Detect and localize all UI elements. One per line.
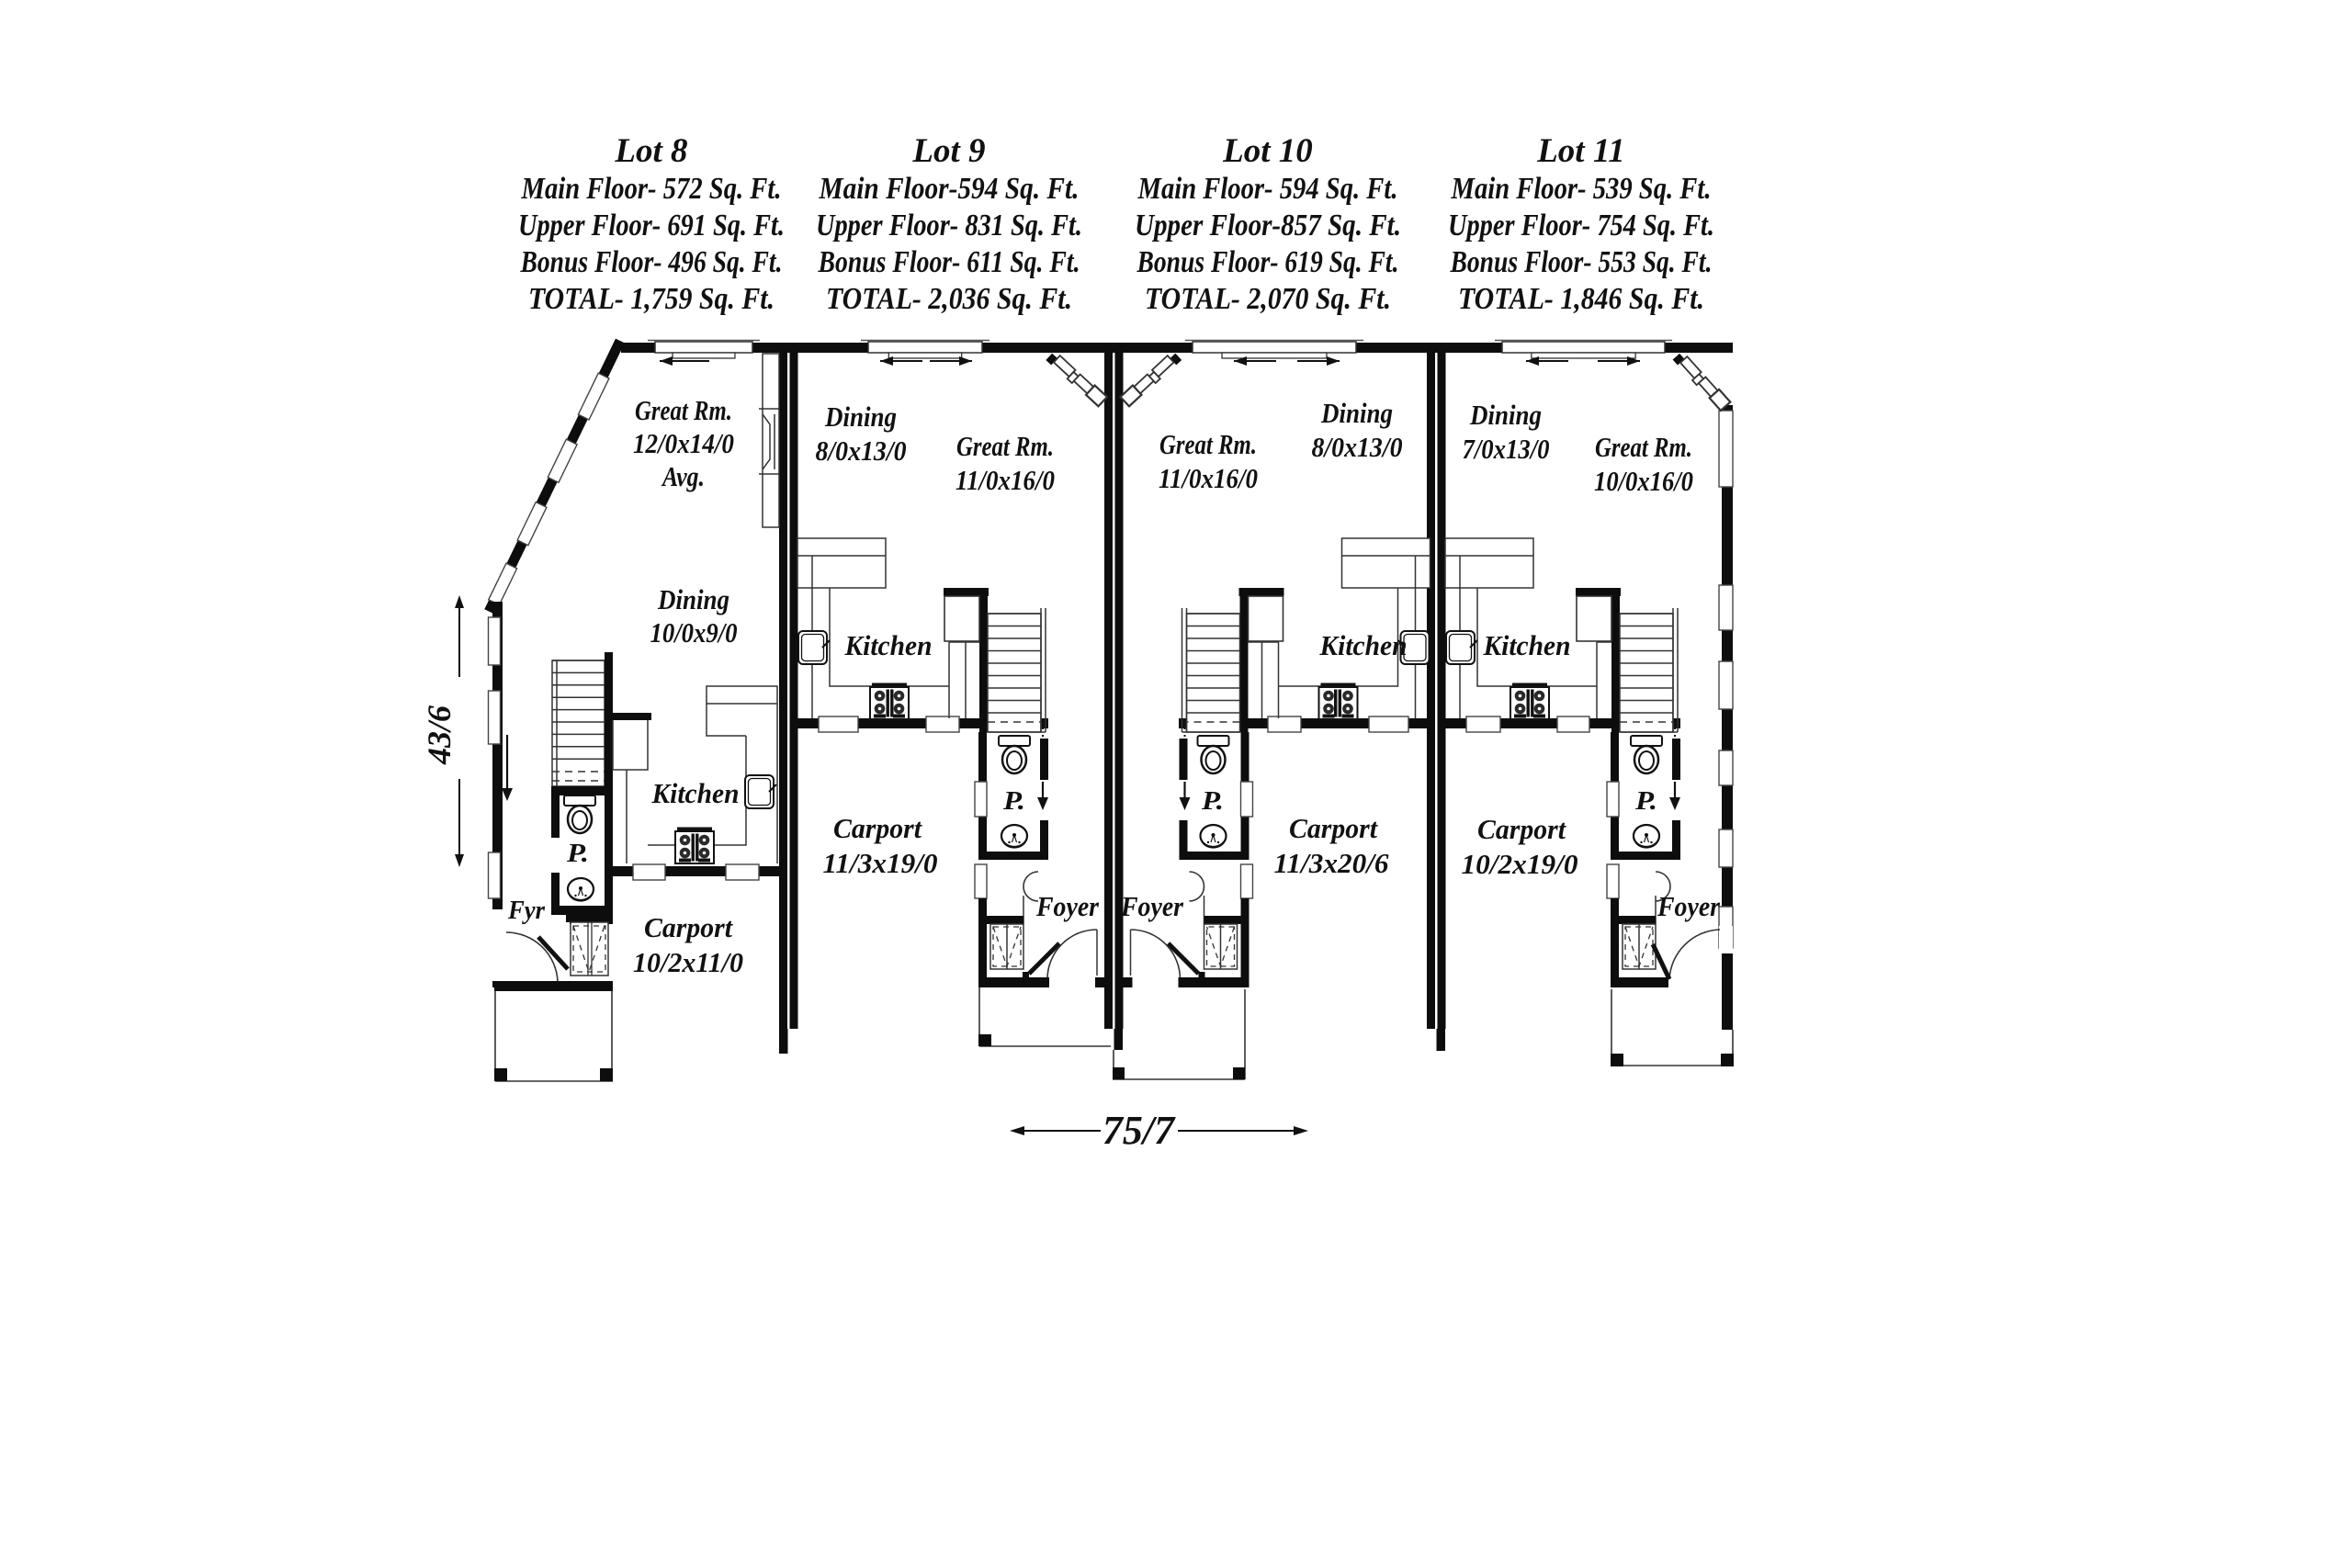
svg-text:Great Rm.: Great Rm.: [1595, 431, 1692, 463]
svg-text:Carport: Carport: [644, 911, 733, 943]
svg-text:Carport: Carport: [1477, 813, 1566, 845]
svg-text:12/0x14/0: 12/0x14/0: [633, 427, 734, 459]
svg-text:TOTAL- 1,846 Sq. Ft.: TOTAL- 1,846 Sq. Ft.: [1458, 282, 1704, 316]
svg-text:Carport: Carport: [833, 812, 922, 844]
svg-text:Avg.: Avg.: [661, 460, 705, 492]
svg-text:TOTAL- 1,759 Sq. Ft.: TOTAL- 1,759 Sq. Ft.: [528, 282, 775, 316]
svg-text:Main Floor-594 Sq. Ft.: Main Floor-594 Sq. Ft.: [819, 172, 1080, 206]
svg-text:75/7: 75/7: [1102, 1108, 1176, 1153]
svg-text:Kitchen: Kitchen: [844, 629, 933, 661]
svg-text:Kitchen: Kitchen: [1483, 629, 1571, 661]
svg-text:TOTAL- 2,070 Sq. Ft.: TOTAL- 2,070 Sq. Ft.: [1145, 282, 1391, 316]
svg-text:10/2x19/0: 10/2x19/0: [1462, 848, 1578, 880]
svg-text:P.: P.: [1634, 786, 1657, 816]
svg-text:P.: P.: [1201, 786, 1224, 816]
svg-text:Upper Floor- 691 Sq. Ft.: Upper Floor- 691 Sq. Ft.: [518, 209, 785, 243]
svg-text:Lot 11: Lot 11: [1536, 132, 1625, 170]
svg-text:Lot 9: Lot 9: [911, 132, 985, 170]
svg-text:11/0x16/0: 11/0x16/0: [1159, 462, 1258, 494]
svg-text:Foyer: Foyer: [1657, 890, 1721, 922]
svg-text:Main Floor- 572 Sq. Ft.: Main Floor- 572 Sq. Ft.: [521, 172, 782, 206]
svg-text:P.: P.: [566, 839, 589, 868]
svg-text:10/0x9/0: 10/0x9/0: [650, 616, 738, 649]
svg-text:Great Rm.: Great Rm.: [956, 430, 1054, 462]
svg-text:11/3x20/6: 11/3x20/6: [1274, 847, 1390, 879]
svg-text:Dining: Dining: [657, 583, 729, 615]
svg-text:Main Floor- 594 Sq. Ft.: Main Floor- 594 Sq. Ft.: [1137, 172, 1398, 206]
svg-text:Fyr: Fyr: [507, 896, 546, 925]
svg-text:Dining: Dining: [1469, 399, 1542, 431]
svg-text:Dining: Dining: [824, 400, 897, 433]
svg-text:Main Floor- 539 Sq. Ft.: Main Floor- 539 Sq. Ft.: [1451, 172, 1712, 206]
svg-text:Upper Floor- 831 Sq. Ft.: Upper Floor- 831 Sq. Ft.: [816, 209, 1082, 243]
svg-text:10/0x16/0: 10/0x16/0: [1594, 465, 1693, 497]
svg-text:Kitchen: Kitchen: [1319, 629, 1408, 661]
svg-text:10/2x11/0: 10/2x11/0: [633, 946, 743, 978]
svg-text:Lot 10: Lot 10: [1222, 132, 1313, 170]
svg-text:Bonus Floor- 553 Sq. Ft.: Bonus Floor- 553 Sq. Ft.: [1450, 245, 1713, 279]
svg-text:Great Rm.: Great Rm.: [635, 394, 732, 426]
svg-text:8/0x13/0: 8/0x13/0: [1312, 431, 1403, 463]
svg-text:Foyer: Foyer: [1120, 890, 1184, 922]
svg-text:Great Rm.: Great Rm.: [1159, 428, 1257, 460]
svg-text:Upper Floor-857 Sq. Ft.: Upper Floor-857 Sq. Ft.: [1135, 209, 1401, 243]
svg-text:11/0x16/0: 11/0x16/0: [955, 464, 1055, 496]
svg-text:7/0x13/0: 7/0x13/0: [1463, 433, 1550, 465]
svg-text:Bonus Floor- 496 Sq. Ft.: Bonus Floor- 496 Sq. Ft.: [520, 245, 783, 279]
svg-text:TOTAL- 2,036 Sq. Ft.: TOTAL- 2,036 Sq. Ft.: [826, 282, 1072, 316]
svg-text:43/6: 43/6: [421, 705, 458, 765]
svg-text:Lot 8: Lot 8: [614, 132, 687, 170]
svg-text:Upper Floor- 754 Sq. Ft.: Upper Floor- 754 Sq. Ft.: [1448, 209, 1714, 243]
svg-text:8/0x13/0: 8/0x13/0: [816, 434, 907, 467]
svg-text:11/3x19/0: 11/3x19/0: [823, 847, 938, 879]
svg-text:Kitchen: Kitchen: [651, 777, 740, 809]
svg-text:Foyer: Foyer: [1035, 890, 1100, 922]
svg-text:Bonus Floor- 611 Sq. Ft.: Bonus Floor- 611 Sq. Ft.: [818, 245, 1080, 279]
svg-text:Bonus Floor- 619 Sq. Ft.: Bonus Floor- 619 Sq. Ft.: [1136, 245, 1399, 279]
svg-text:Dining: Dining: [1320, 397, 1393, 429]
svg-text:P.: P.: [1002, 786, 1025, 816]
svg-text:Carport: Carport: [1289, 812, 1378, 844]
